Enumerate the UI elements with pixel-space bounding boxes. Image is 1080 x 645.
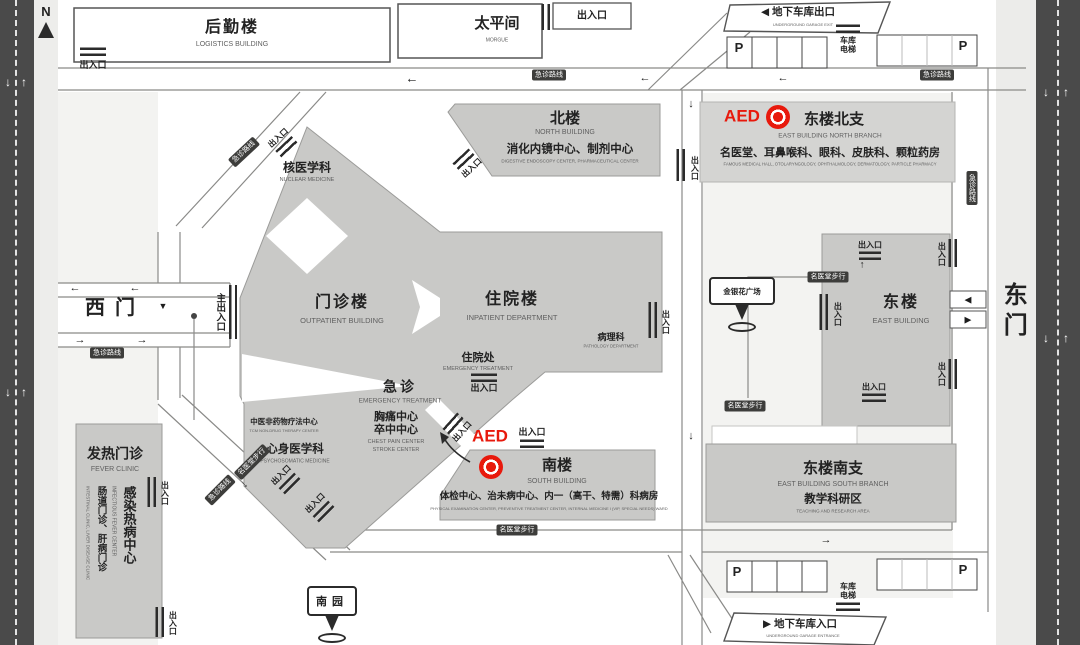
gate-bars-icon — [148, 477, 157, 507]
gate-bars-icon — [836, 25, 860, 34]
compass-arrow-icon — [38, 22, 54, 38]
east-gate-arrow-out-icon: ▶ — [965, 315, 972, 326]
arrow-right-solid-icon: ▶ — [763, 618, 771, 630]
east-building-label-en: EAST BUILDING — [873, 317, 930, 325]
parking-label: P — [959, 39, 968, 53]
garage-exit-text: 地下车库出口 — [772, 6, 835, 18]
lane-arrow-up-icon: ↑ — [1063, 85, 1069, 99]
gate-bars-icon — [949, 239, 958, 267]
chest-pain-center-label-en: CHEST PAIN CENTER — [368, 439, 425, 445]
intestinal-liver-clinic-label: 肠道门诊、肝病门诊 — [94, 486, 108, 572]
stroke-center-label: 卒中中心 — [374, 424, 418, 436]
pathology-label-en: PATHOLOGY DEPARTMENT — [584, 345, 639, 350]
psychosomatic-label: 心身医学科 — [266, 444, 324, 457]
road-arrow-right-icon: → — [137, 334, 148, 346]
pathology-label: 病理科 — [597, 333, 624, 343]
entrance-exit-label: 出入口 — [79, 61, 106, 71]
plaza-signpost-pole — [735, 304, 749, 320]
south-building-label-en: SOUTH BUILDING — [527, 478, 587, 486]
walk-route-badge: 名医堂步行 — [808, 272, 849, 283]
inpatient-building-label: 住院楼 — [485, 291, 539, 309]
tcm-center-label: 中医非药物疗法中心 — [250, 418, 318, 426]
garden-signpost-label: 南园 — [316, 593, 348, 609]
entrance-exit-label: 出入口 — [160, 481, 169, 505]
emergency-route-badge-vertical: 急诊路线 — [967, 171, 978, 205]
gate-bars-icon — [820, 294, 829, 330]
entrance-exit-label: 出入口 — [690, 156, 699, 180]
road-arrow-left-icon: ← — [70, 282, 81, 294]
morgue-label: 太平间 — [474, 16, 519, 33]
west-sidewalk — [34, 0, 58, 645]
garage-entrance-text: 地下车库入口 — [774, 618, 837, 630]
teaching-research-label-en: TEACHING AND RESEARCH AREA — [796, 510, 869, 515]
entrance-exit-label: 出入口 — [937, 242, 946, 266]
emergency-route-badge: 急诊路线 — [90, 348, 124, 359]
north-building-depts-en: DIGESTIVE ENDOSCOPY CENTER, PHARMACEUTIC… — [501, 160, 638, 165]
morgue-label-en: MORGUE — [486, 38, 509, 44]
aed-target-icon — [479, 455, 503, 479]
entrance-exit-label: 出入口 — [470, 384, 497, 394]
entrance-exit-label: 出入口 — [518, 428, 545, 438]
logistics-building-label: 后勤楼 — [205, 19, 259, 37]
psychosomatic-label-en: PSYCHOSOMATIC MEDICINE — [260, 459, 329, 465]
garage-elevator-label: 车库电梯 — [839, 37, 857, 55]
lane-arrow-down-icon: ↓ — [1043, 85, 1049, 99]
gate-bars-icon — [836, 603, 860, 612]
admission-label-en: EMERGENCY TREATMENT — [443, 366, 513, 372]
east-north-branch-label: 东楼北支 — [804, 112, 864, 129]
east-south-branch-label: 东楼南支 — [803, 461, 863, 478]
walk-route-badge: 名医堂步行 — [497, 525, 538, 536]
west-road — [0, 0, 34, 645]
entrance-exit-label: 出入口 — [862, 384, 886, 393]
road-arrow-right-icon: → — [821, 534, 832, 546]
garage-entrance-sign-label: ▶ 地下车库入口 — [763, 619, 837, 631]
entrance-exit-label: 出入口 — [833, 302, 842, 326]
nuclear-medicine-label: 核医学科 — [283, 161, 331, 174]
east-gate-arrow-in-icon: ◀ — [965, 295, 972, 306]
emergency-route-badge: 急诊路线 — [532, 70, 566, 81]
garden-signpost-base — [318, 633, 346, 643]
garden-signpost: 南园 — [307, 586, 357, 616]
gate-bars-icon — [649, 302, 658, 338]
tcm-center-label-en: TCM NON-DRUG THERAPY CENTER — [249, 429, 318, 433]
aed-label: AED — [724, 108, 760, 127]
entrance-exit-label: 出入口 — [577, 11, 607, 22]
gate-bars-icon — [949, 359, 958, 389]
emergency-route-badge: 急诊路线 — [920, 70, 954, 81]
lane-arrow-down-icon: ↓ — [5, 75, 11, 89]
road-arrow-down-icon: ↓ — [688, 430, 694, 442]
east-building-shape — [822, 234, 950, 426]
chest-pain-center-label: 胸痛中心 — [374, 411, 418, 423]
intestinal-liver-clinic-label-en: INTESTINAL CLINIC, LIVER DISEASE CLINIC — [86, 486, 91, 580]
south-building-label: 南楼 — [542, 458, 572, 475]
plaza-signpost-label: 金银花广场 — [723, 286, 761, 297]
plaza-signpost: 金银花广场 — [709, 277, 775, 305]
north-building-depts: 消化内镜中心、制剂中心 — [507, 144, 634, 157]
garage-entrance-label-en: UNDERGROUND GARAGE ENTRANCE — [766, 634, 839, 638]
road-arrow-left-icon: ← — [778, 72, 789, 84]
teaching-research-label: 教学科研区 — [804, 494, 862, 507]
east-building-label: 东楼 — [883, 294, 919, 312]
inpatient-building-label-en: INPATIENT DEPARTMENT — [467, 314, 558, 322]
road-arrow-left-icon: ← — [406, 71, 419, 86]
east-north-branch-depts-en: FAMOUS MEDICAL HALL, OTOLARYNGOLOGY, OPH… — [724, 163, 937, 168]
west-gate-label: 西门 — [85, 297, 145, 319]
lane-arrow-up-icon: ↑ — [21, 75, 27, 89]
gate-bars-icon — [471, 374, 497, 383]
compass-north-label: N — [41, 5, 50, 19]
east-south-branch-label-en: EAST BUILDING SOUTH BRANCH — [777, 481, 888, 489]
parking-row-bottom-left — [727, 561, 827, 592]
morgue-building-shape — [398, 4, 542, 58]
logistics-building-label-en: LOGISTICS BUILDING — [196, 41, 268, 49]
fever-clinic-label: 发热门诊 — [87, 446, 143, 461]
arrow-left-solid-icon: ◀ — [761, 6, 769, 18]
gate-bars-icon — [677, 149, 686, 181]
entrance-exit-label: 出入口 — [858, 242, 882, 251]
stroke-center-label-en: STROKE CENTER — [373, 447, 420, 453]
west-area-north — [58, 92, 158, 283]
lane-arrow-down-icon: ↓ — [1043, 331, 1049, 345]
gate-bars-icon — [156, 607, 165, 637]
walk-route-badge: 名医堂步行 — [725, 401, 766, 412]
west-road-centerline — [15, 0, 17, 645]
east-gate-label: 东门 — [999, 282, 1025, 342]
lane-arrow-up-icon: ↑ — [1063, 331, 1069, 345]
lane-arrow-down-icon: ↓ — [5, 385, 11, 399]
emergency-label: 急诊 — [383, 379, 417, 394]
road-arrow-left-icon: ← — [640, 72, 651, 84]
east-north-branch-depts: 名医堂、耳鼻喉科、眼科、皮肤科、颗粒药房 — [720, 147, 940, 159]
outpatient-building-label-en: OUTPATIENT BUILDING — [300, 317, 384, 325]
road-arrow-right-icon: → — [75, 334, 86, 346]
garage-exit-label-en: UNDERGROUND GARAGE EXIT — [773, 23, 833, 27]
gate-bars-icon — [542, 4, 553, 30]
south-building-depts: 体检中心、治未病中心、内一（高干、特需）科病房 — [440, 492, 659, 502]
west-path-node-dot — [191, 313, 197, 319]
north-building-label-en: NORTH BUILDING — [535, 129, 595, 137]
road-arrow-up-icon: ↑ — [860, 260, 865, 271]
gate-bars-icon — [862, 394, 886, 403]
outpatient-building-label: 门诊楼 — [315, 294, 369, 312]
nuclear-medicine-label-en: NUCLEAR MEDICINE — [280, 177, 335, 183]
infectious-fever-center-label: 感染热病中心 — [120, 486, 139, 564]
east-north-branch-label-en: EAST BUILDING NORTH BRANCH — [778, 132, 881, 139]
fever-clinic-vertical-labels: INTESTINAL CLINIC, LIVER DISEASE CLINIC … — [80, 486, 144, 631]
parking-label: P — [959, 563, 968, 577]
road-arrow-down-icon: ↓ — [688, 98, 694, 110]
road-arrow-down-solid-icon: ▼ — [159, 301, 168, 311]
emergency-label-en: EMERGENCY TREATMENT — [359, 397, 442, 404]
garage-elevator-label: 车库电梯 — [839, 583, 857, 601]
lane-arrow-up-icon: ↑ — [21, 385, 27, 399]
gate-bars-icon — [229, 285, 237, 339]
gate-bars-icon — [80, 48, 106, 61]
aed-label: AED — [472, 428, 508, 447]
fever-clinic-label-en: FEVER CLINIC — [91, 466, 139, 474]
admission-label: 住院处 — [462, 352, 495, 364]
infectious-fever-center-label-en: INFECTIOUS FEVER CENTER — [111, 486, 117, 556]
gate-bars-icon — [859, 252, 881, 261]
gate-bars-icon — [520, 440, 544, 449]
main-entrance-label: 主出入口 — [214, 293, 224, 331]
parking-label: P — [733, 565, 742, 579]
entrance-exit-label: 出入口 — [661, 310, 670, 334]
south-building-depts-en: PHYSICAL EXAMINATION CENTER, PREVENTIVE … — [430, 507, 667, 511]
north-building-label: 北楼 — [550, 111, 580, 128]
hospital-campus-map: ↓ ↑ ↓ ↑ ↓ ↑ ↓ ↑ N 后勤楼 LOGISTICS BUILDING… — [0, 0, 1080, 645]
garage-exit-sign-label: ◀ 地下车库出口 — [761, 7, 835, 19]
east-road-centerline — [1057, 0, 1059, 645]
entrance-exit-label: 出入口 — [168, 611, 177, 635]
east-south-annex-box — [712, 426, 857, 446]
plaza-signpost-base — [728, 322, 756, 332]
aed-target-icon — [766, 105, 790, 129]
road-arrow-left-icon: ← — [130, 282, 141, 294]
parking-label: P — [735, 41, 744, 55]
garden-signpost-pole — [325, 615, 339, 631]
entrance-exit-label: 出入口 — [937, 362, 946, 386]
